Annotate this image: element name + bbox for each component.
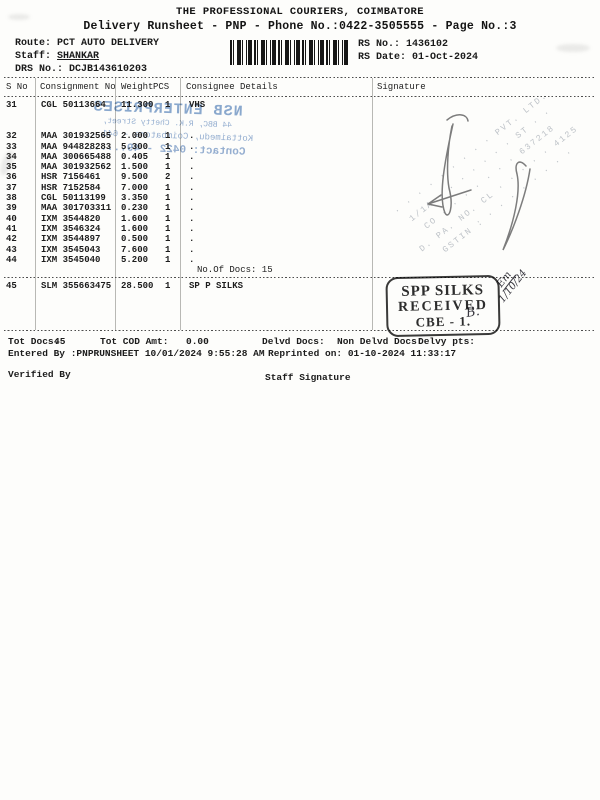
- rs-no-label: RS No.:: [358, 39, 400, 50]
- cell-consignment: IXM 3545043: [41, 245, 121, 255]
- cell-pcs: 1: [163, 245, 189, 255]
- cell-pcs: 1: [163, 281, 189, 291]
- cell-pcs: 1: [163, 162, 189, 172]
- delvd-docs-label: Delvd Docs:: [262, 336, 325, 347]
- cell-sno: 45: [6, 281, 41, 291]
- table-top-separator: [4, 77, 595, 78]
- cell-pcs: 1: [163, 234, 189, 244]
- cell-consignee: .: [189, 234, 375, 244]
- rs-date-label: RS Date:: [358, 52, 406, 63]
- staff-value: SHANKAR: [57, 51, 99, 62]
- handwritten-initial: B.: [465, 304, 481, 321]
- cell-sno: 43: [6, 245, 41, 255]
- table-header-separator: [4, 96, 595, 97]
- cell-weight: 28.500: [121, 281, 163, 291]
- rs-no-value: 1436102: [406, 39, 448, 50]
- received-stamp: SPP SILKS RECEIVED CBE - 1.: [385, 275, 500, 337]
- cell-sno: 38: [6, 193, 41, 203]
- cell-weight: 3.350: [121, 193, 163, 203]
- cell-sno: 37: [6, 183, 41, 193]
- cell-consignment: MAA 944828283: [41, 142, 121, 152]
- cell-consignment: SLM 355663475: [41, 281, 121, 291]
- tot-docs-label: Tot Docs:: [8, 336, 59, 347]
- route-line: Route: PCT AUTO DELIVERY: [15, 38, 159, 49]
- col-header-pcs: PCS: [153, 82, 169, 92]
- staff-line: Staff: SHANKAR: [15, 51, 99, 62]
- cell-sno: 35: [6, 162, 41, 172]
- cell-weight: 9.500: [121, 172, 163, 182]
- col-header-sno: S No: [6, 82, 28, 92]
- cell-pcs: 2: [163, 172, 189, 182]
- scan-smudge: [556, 44, 590, 52]
- cell-pcs: 1: [163, 152, 189, 162]
- cell-pcs: 1: [163, 224, 189, 234]
- totals-line: Tot Docs: 45 Tot COD Amt: 0.00 Delvd Doc…: [0, 336, 600, 348]
- col-header-consignee: Consignee Details: [186, 82, 278, 92]
- drs-line: DRS No.: DCJB143610203: [15, 64, 147, 75]
- staff-label: Staff:: [15, 51, 51, 62]
- cell-sno: 39: [6, 203, 41, 213]
- tot-cod-label: Tot COD Amt:: [100, 336, 168, 347]
- cell-pcs: 1: [163, 142, 189, 152]
- received-stamp-company: SPP SILKS: [401, 282, 484, 300]
- cell-consignment: MAA 301703311: [41, 203, 121, 213]
- cell-sno: 41: [6, 224, 41, 234]
- scan-smudge: [8, 14, 30, 20]
- cell-consignee: .: [189, 162, 375, 172]
- cell-weight: 0.230: [121, 203, 163, 213]
- rs-date-line: RS Date: 01-Oct-2024: [358, 52, 478, 63]
- cell-weight: 7.600: [121, 245, 163, 255]
- pen-signature: [395, 100, 575, 270]
- cell-consignment: IXM 3544897: [41, 234, 121, 244]
- cell-consignment: HSR 7156461: [41, 172, 121, 182]
- col-header-signature: Signature: [377, 82, 426, 92]
- cell-sno: 31: [6, 100, 41, 110]
- col-header-weight: Weight: [121, 82, 153, 92]
- cell-pcs: 1: [163, 203, 189, 213]
- cell-consignee: .: [189, 193, 375, 203]
- table-bottom-separator: [4, 330, 595, 331]
- cell-weight: 5.300: [121, 142, 163, 152]
- cell-sno: 32: [6, 131, 41, 141]
- cell-consignee: .: [189, 203, 375, 213]
- cell-consignment: IXM 3546324: [41, 224, 121, 234]
- runsheet-subtitle: Delivery Runsheet - PNP - Phone No.:0422…: [0, 20, 600, 33]
- cell-pcs: 1: [163, 193, 189, 203]
- drs-label: DRS No.:: [15, 64, 63, 75]
- route-value: PCT AUTO DELIVERY: [57, 38, 159, 49]
- reprinted-line: Reprinted on: 01-10-2024 11:33:17: [268, 348, 456, 359]
- cell-consignment: MAA 301932565: [41, 131, 121, 141]
- cell-weight: 1.500: [121, 162, 163, 172]
- cell-sno: 36: [6, 172, 41, 182]
- cell-consignment: CGL 50113199: [41, 193, 121, 203]
- entered-by-line: Entered By :PNPRUNSHEET 10/01/2024 9:55:…: [8, 348, 265, 359]
- barcode: [230, 40, 350, 65]
- cell-consignment: IXM 3544820: [41, 214, 121, 224]
- cell-pcs: 1: [163, 214, 189, 224]
- cell-consignee: .: [189, 172, 375, 182]
- cell-weight: 2.000: [121, 131, 163, 141]
- tot-cod-value: 0.00: [186, 336, 209, 347]
- tot-docs-value: 45: [54, 336, 65, 347]
- cell-weight: 1.600: [121, 214, 163, 224]
- cell-consignee: .: [189, 142, 375, 152]
- cell-pcs: 1: [163, 131, 189, 141]
- cell-consignment: MAA 300665488: [41, 152, 121, 162]
- cell-consignee: .: [189, 224, 375, 234]
- route-label: Route:: [15, 38, 51, 49]
- non-delvd-docs-label: Non Delvd Docs:: [337, 336, 423, 347]
- staff-signature-label: Staff Signature: [265, 372, 351, 383]
- cell-consignee: .: [189, 131, 375, 141]
- rs-date-value: 01-Oct-2024: [412, 52, 478, 63]
- cell-consignment: MAA 301932562: [41, 162, 121, 172]
- cell-consignment: CGL 50113664: [41, 100, 121, 110]
- cell-pcs: 1: [163, 183, 189, 193]
- cell-sno: 34: [6, 152, 41, 162]
- cell-sno: 42: [6, 234, 41, 244]
- col-header-consignment: Consignment No: [40, 82, 116, 92]
- cell-sno: 33: [6, 142, 41, 152]
- cell-consignee: VHS: [189, 100, 375, 110]
- cell-weight: 7.000: [121, 183, 163, 193]
- cell-weight: 11.300: [121, 100, 163, 110]
- cell-consignee: SP P SILKS: [189, 281, 375, 291]
- scanned-delivery-runsheet: THE PROFESSIONAL COURIERS, COIMBATORE De…: [0, 0, 600, 800]
- rs-no-line: RS No.: 1436102: [358, 39, 448, 50]
- company-title: THE PROFESSIONAL COURIERS, COIMBATORE: [0, 6, 600, 18]
- received-stamp-city: CBE - 1.: [416, 313, 472, 329]
- cell-weight: 0.500: [121, 234, 163, 244]
- cell-pcs: 1: [163, 100, 189, 110]
- cell-consignment: HSR 7152584: [41, 183, 121, 193]
- cell-sno: 40: [6, 214, 41, 224]
- verified-by-label: Verified By: [8, 369, 71, 380]
- cell-weight: 0.405: [121, 152, 163, 162]
- cell-consignee: .: [189, 214, 375, 224]
- cell-consignee: .: [189, 183, 375, 193]
- delvy-pts-label: Delvy pts:: [418, 336, 475, 347]
- drs-value: DCJB143610203: [69, 64, 147, 75]
- cell-consignee: .: [189, 152, 375, 162]
- cell-weight: 1.600: [121, 224, 163, 234]
- cell-consignee: .: [189, 245, 375, 255]
